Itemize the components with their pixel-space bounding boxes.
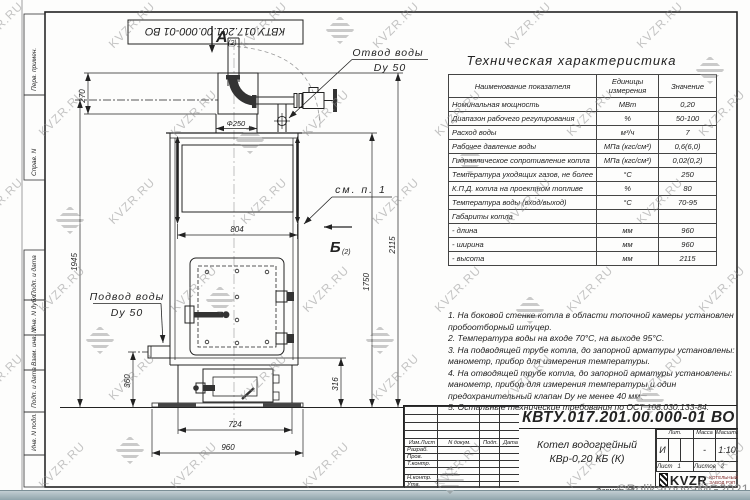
revision-header-cell: Дата <box>499 438 519 446</box>
revision-cell <box>499 474 519 481</box>
mass-label: Масса <box>693 429 715 438</box>
spec-name: К.П.Д. котла на проектном топливе <box>449 182 597 196</box>
margin-label: Перв. примен. <box>31 48 38 91</box>
dimensions <box>75 73 403 457</box>
product-name: Котел водогрейный КВр-0,20 КБ (К) <box>519 429 656 488</box>
spec-row: - ширинамм960 <box>449 238 717 252</box>
svg-text:316: 316 <box>331 377 340 391</box>
spec-unit: МПа (кгс/см²) <box>597 140 659 154</box>
revision-cell <box>404 467 437 474</box>
spec-name: Диапазон рабочего регулирования <box>449 112 597 126</box>
door-hinges <box>276 291 294 344</box>
margin-label: Подп. и дата <box>31 255 38 296</box>
revision-cell <box>404 422 437 430</box>
svg-text:1750: 1750 <box>362 273 371 291</box>
spec-row: Габариты котла <box>449 210 717 224</box>
spec-name: Рабочее давление воды <box>449 140 597 154</box>
spec-unit: мм <box>597 224 659 238</box>
revision-cell <box>404 406 437 414</box>
revision-cell <box>499 481 519 488</box>
svg-text:см. п. 1: см. п. 1 <box>335 184 387 196</box>
lit-cell-3 <box>680 438 693 461</box>
spec-name: - ширина <box>449 238 597 252</box>
svg-text:Б: Б <box>330 239 341 256</box>
spec-value: 7 <box>659 126 717 140</box>
note-item: 4. На отводящей трубе котла, до запорной… <box>448 368 738 403</box>
window-bottom-edge <box>0 490 750 500</box>
revision-cell <box>437 414 479 422</box>
margin-label: Подп. и дата <box>31 367 38 408</box>
spec-name: Расход воды <box>449 126 597 140</box>
revision-cell <box>479 406 499 414</box>
revision-cell: Разраб. <box>404 446 437 453</box>
svg-text:724: 724 <box>228 420 242 429</box>
spec-unit: МВт <box>597 98 659 112</box>
spec-value: 70-95 <box>659 196 717 210</box>
revision-cell <box>404 430 437 438</box>
spec-unit: °С <box>597 168 659 182</box>
spec-name: Гидравлическое сопротивление котла <box>449 154 597 168</box>
spec-name: Номинальная мощность <box>449 98 597 112</box>
scale-value: 1:10 <box>715 438 738 461</box>
revision-cell <box>437 474 479 481</box>
spec-value: 960 <box>659 238 717 252</box>
svg-text:960: 960 <box>221 443 235 452</box>
revision-cell <box>479 430 499 438</box>
revision-cell <box>479 481 499 488</box>
sheet-cell: Лист 1 <box>656 461 693 471</box>
mass-value: - <box>693 438 715 461</box>
revision-cell <box>499 453 519 460</box>
revision-cell: Т.контр. <box>404 460 437 467</box>
ash-door-latch <box>193 383 215 393</box>
revision-cell <box>437 406 479 414</box>
revision-cell <box>479 453 499 460</box>
sheets-label: Листов <box>694 464 716 470</box>
svg-text:Подвод воды: Подвод воды <box>90 291 165 303</box>
door-bolts <box>205 269 269 345</box>
inlet-callout: Подвод воды Dy 50 <box>90 291 165 343</box>
svg-text:Отвод воды: Отвод воды <box>352 47 423 59</box>
svg-text:2115: 2115 <box>388 236 397 255</box>
product-name-line2: КВр-0,20 КБ (К) <box>519 452 655 466</box>
margin-label: Взам. инв. N <box>31 328 38 366</box>
revision-cell <box>499 406 519 414</box>
spec-col-header: Значение <box>659 75 717 98</box>
title-block: КВТУ.017.201.00.000-01 ВО Котел водогрей… <box>403 405 737 487</box>
note-item: 2. Температура воды на входе 70°С, на вы… <box>448 333 738 345</box>
sheet-value: 1 <box>677 464 680 470</box>
revision-cell <box>437 460 479 467</box>
svg-text:А: А <box>215 29 228 46</box>
revision-cell <box>479 474 499 481</box>
revision-cell <box>479 467 499 474</box>
spec-row: К.П.Д. котла на проектном топливе%80 <box>449 182 717 196</box>
spec-value: 0,20 <box>659 98 717 112</box>
revision-cell <box>499 430 519 438</box>
sheets-cell: Листов 2 <box>693 461 738 471</box>
revision-cell <box>479 446 499 453</box>
spec-unit: мм <box>597 252 659 266</box>
sheet-label: Лист <box>657 464 672 470</box>
product-name-line1: Котел водогрейный <box>519 438 655 452</box>
spec-row: Номинальная мощностьМВт0,20 <box>449 98 717 112</box>
revision-cell <box>499 422 519 430</box>
technical-notes: 1. На боковой стенке котла в области топ… <box>448 310 738 414</box>
spec-row: Расход водым³/ч7 <box>449 126 717 140</box>
svg-text:(2): (2) <box>342 249 351 256</box>
revision-cell: Пров. <box>404 453 437 460</box>
spec-row: - высотамм2115 <box>449 252 717 266</box>
spec-row: Температура воды (вход/выход)°С70-95 <box>449 196 717 210</box>
revision-cell <box>499 446 519 453</box>
revision-header-cell: Изм.Лист <box>404 438 437 446</box>
lit-cell-2 <box>668 438 680 461</box>
revision-cell <box>437 453 479 460</box>
spec-unit: МПа (кгс/см²) <box>597 154 659 168</box>
spec-name: Температура воды (вход/выход) <box>449 196 597 210</box>
revision-cell <box>499 467 519 474</box>
lit-label: Лит. <box>656 429 693 438</box>
spec-row: Рабочее давление водыМПа (кгс/см²)0,6(6,… <box>449 140 717 154</box>
title-block-doc-number: КВТУ.017.201.00.000-01 ВО <box>519 406 738 429</box>
door-handle <box>185 306 229 323</box>
spec-name: - высота <box>449 252 597 266</box>
note-item: 1. На боковой стенке котла в области топ… <box>448 310 738 333</box>
spec-row: - длинамм960 <box>449 224 717 238</box>
margin-label: Инв. N подл. <box>31 413 38 451</box>
spec-value: 50-100 <box>659 112 717 126</box>
revision-cell <box>437 422 479 430</box>
spec-name: - длина <box>449 224 597 238</box>
spec-table-title: Техническая характеристика <box>448 53 695 68</box>
spec-row: Температура уходящих газов, не более°С25… <box>449 168 717 182</box>
spec-value: 250 <box>659 168 717 182</box>
spec-value: 0,02(0,2) <box>659 154 717 168</box>
outlet-callout: Отвод воды Dy 50 <box>289 47 428 118</box>
note-item: 3. На подводящей трубе котла, до запорно… <box>448 345 738 368</box>
margin-label: Справ. N <box>31 149 38 176</box>
projection-arc <box>230 46 320 128</box>
spec-value: 960 <box>659 224 717 238</box>
svg-text:270: 270 <box>78 89 87 104</box>
margin-label: Инв. N дубл. <box>31 293 38 331</box>
revision-cell <box>437 467 479 474</box>
revision-cell <box>404 414 437 422</box>
revision-header-cell: Подп. <box>479 438 499 446</box>
spec-row: Гидравлическое сопротивление котлаМПа (к… <box>449 154 717 168</box>
spec-unit: % <box>597 182 659 196</box>
revision-cell <box>437 481 479 488</box>
sheets-value: 2 <box>721 464 724 470</box>
revision-cell <box>437 430 479 438</box>
revision-cell <box>437 446 479 453</box>
svg-text:Dy 50: Dy 50 <box>111 307 143 319</box>
spec-unit: °С <box>597 196 659 210</box>
spec-row: Диапазон рабочего регулирования%50-100 <box>449 112 717 126</box>
view-marker-b: Б (2) <box>324 227 352 256</box>
svg-text:1945: 1945 <box>70 253 79 271</box>
revision-header-cell: N докум. <box>437 438 479 446</box>
svg-text:804: 804 <box>230 225 244 234</box>
see-note-callout: см. п. 1 <box>304 184 392 224</box>
spec-unit: % <box>597 112 659 126</box>
svg-text:Dy 50: Dy 50 <box>374 62 406 74</box>
revision-cell <box>479 422 499 430</box>
dimension-texts: 270 Ф250 1945 360 804 1750 2115 316 724 … <box>70 89 397 452</box>
spec-value: 0,6(6,0) <box>659 140 717 154</box>
svg-text:360: 360 <box>123 374 132 388</box>
spec-value <box>659 210 717 224</box>
top-stamp-text: КВТУ.017.201.00.000-01 ВО <box>145 25 286 37</box>
svg-text:Ф250: Ф250 <box>227 119 246 128</box>
spec-unit <box>597 210 659 224</box>
spec-value: 80 <box>659 182 717 196</box>
spec-value: 2115 <box>659 252 717 266</box>
spec-name: Температура уходящих газов, не более <box>449 168 597 182</box>
revision-cell <box>479 460 499 467</box>
spec-col-header: Единицы измерения <box>597 75 659 98</box>
revision-cell <box>499 414 519 422</box>
spec-unit: м³/ч <box>597 126 659 140</box>
revision-cell <box>499 460 519 467</box>
spec-col-header: Наименование показателя <box>449 75 597 98</box>
revision-cell: Утв. <box>404 481 437 488</box>
revision-cell <box>479 414 499 422</box>
drawing-sheet: { "sheet": { "watermark_text": "KVZR.RU"… <box>0 0 750 500</box>
boiler-front-view <box>60 38 405 408</box>
revision-cell: Н.контр. <box>404 474 437 481</box>
lit-value: И <box>656 438 668 461</box>
spec-unit: мм <box>597 238 659 252</box>
spec-name: Габариты котла <box>449 210 597 224</box>
scale-label: Масштаб <box>715 429 738 438</box>
spec-table: Наименование показателяЕдиницы измерения… <box>448 74 717 266</box>
